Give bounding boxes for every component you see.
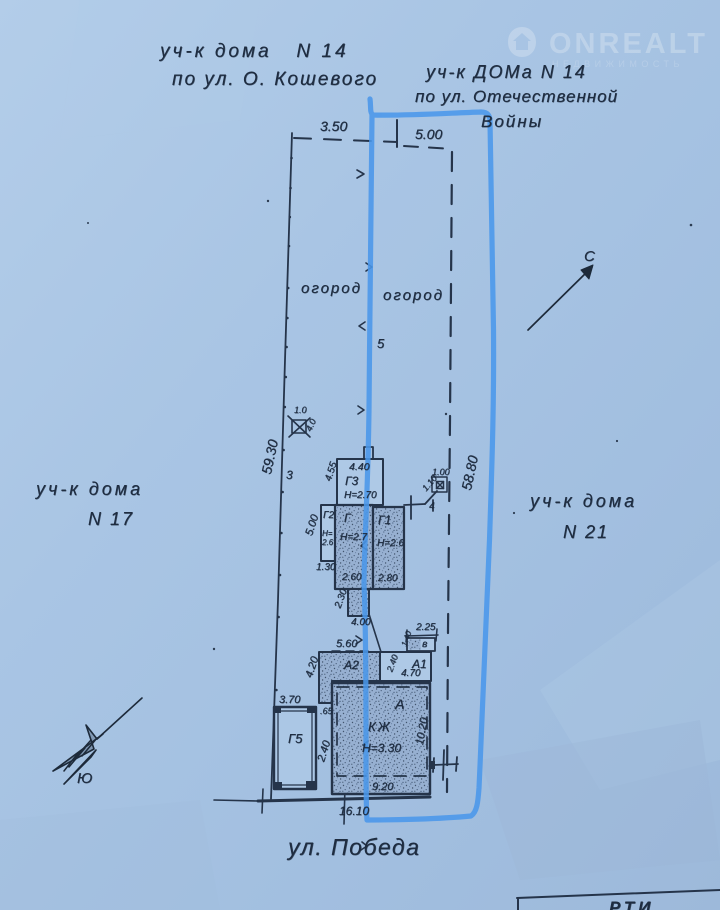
svg-text:ONREALT: ONREALT <box>549 28 708 60</box>
